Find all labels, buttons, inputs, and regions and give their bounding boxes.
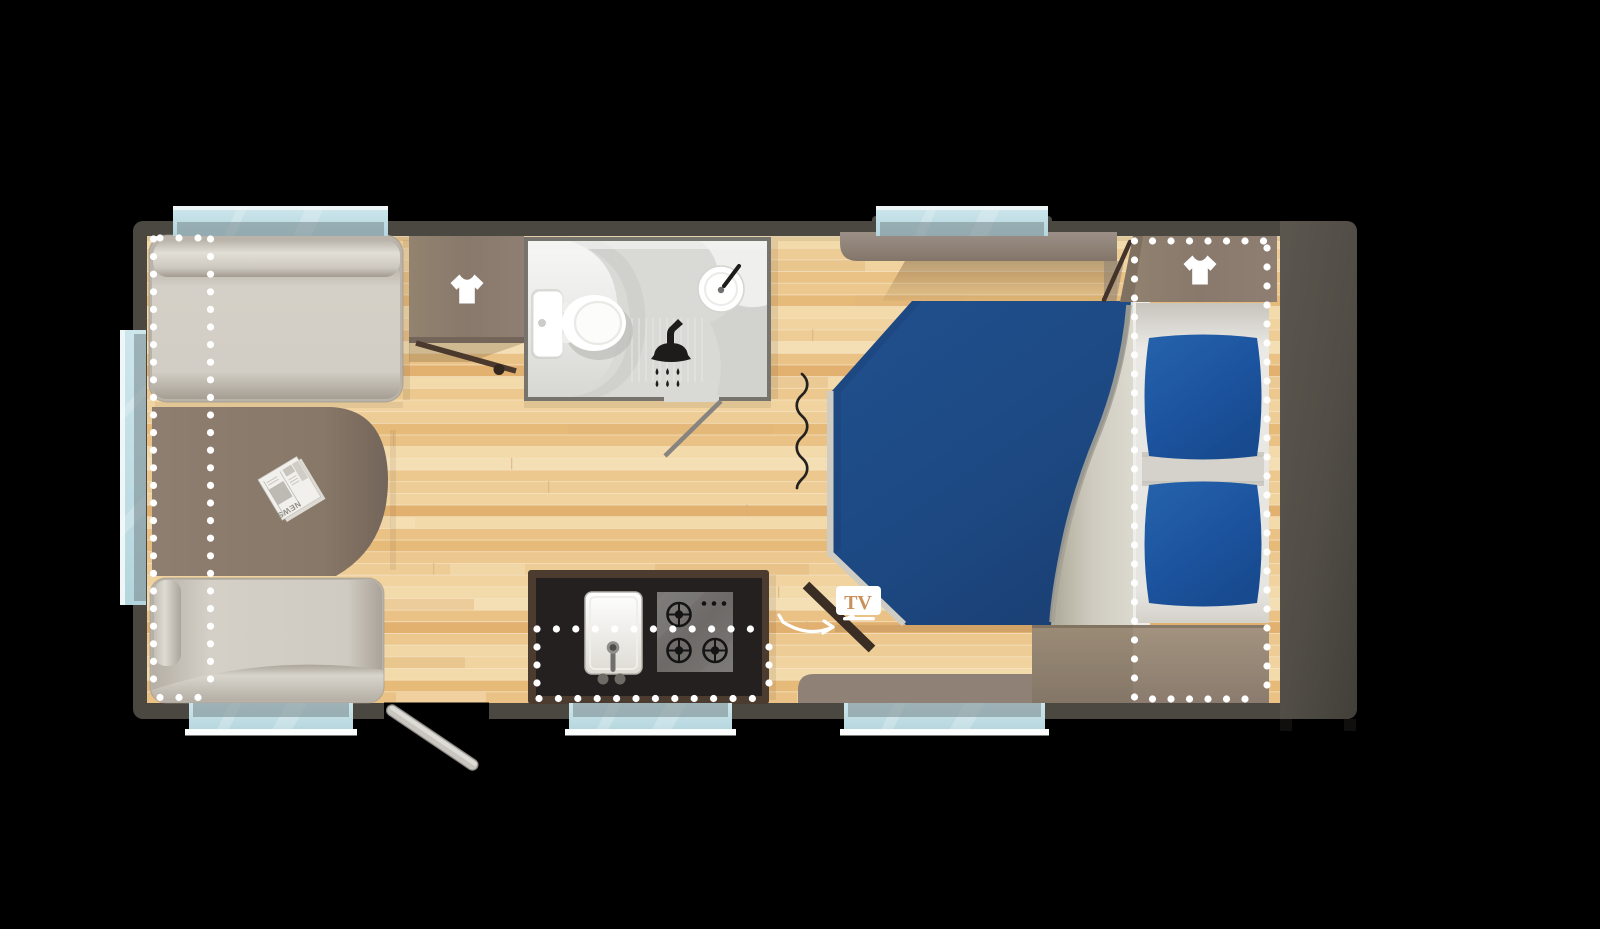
svg-text:TV: TV [844, 592, 872, 614]
